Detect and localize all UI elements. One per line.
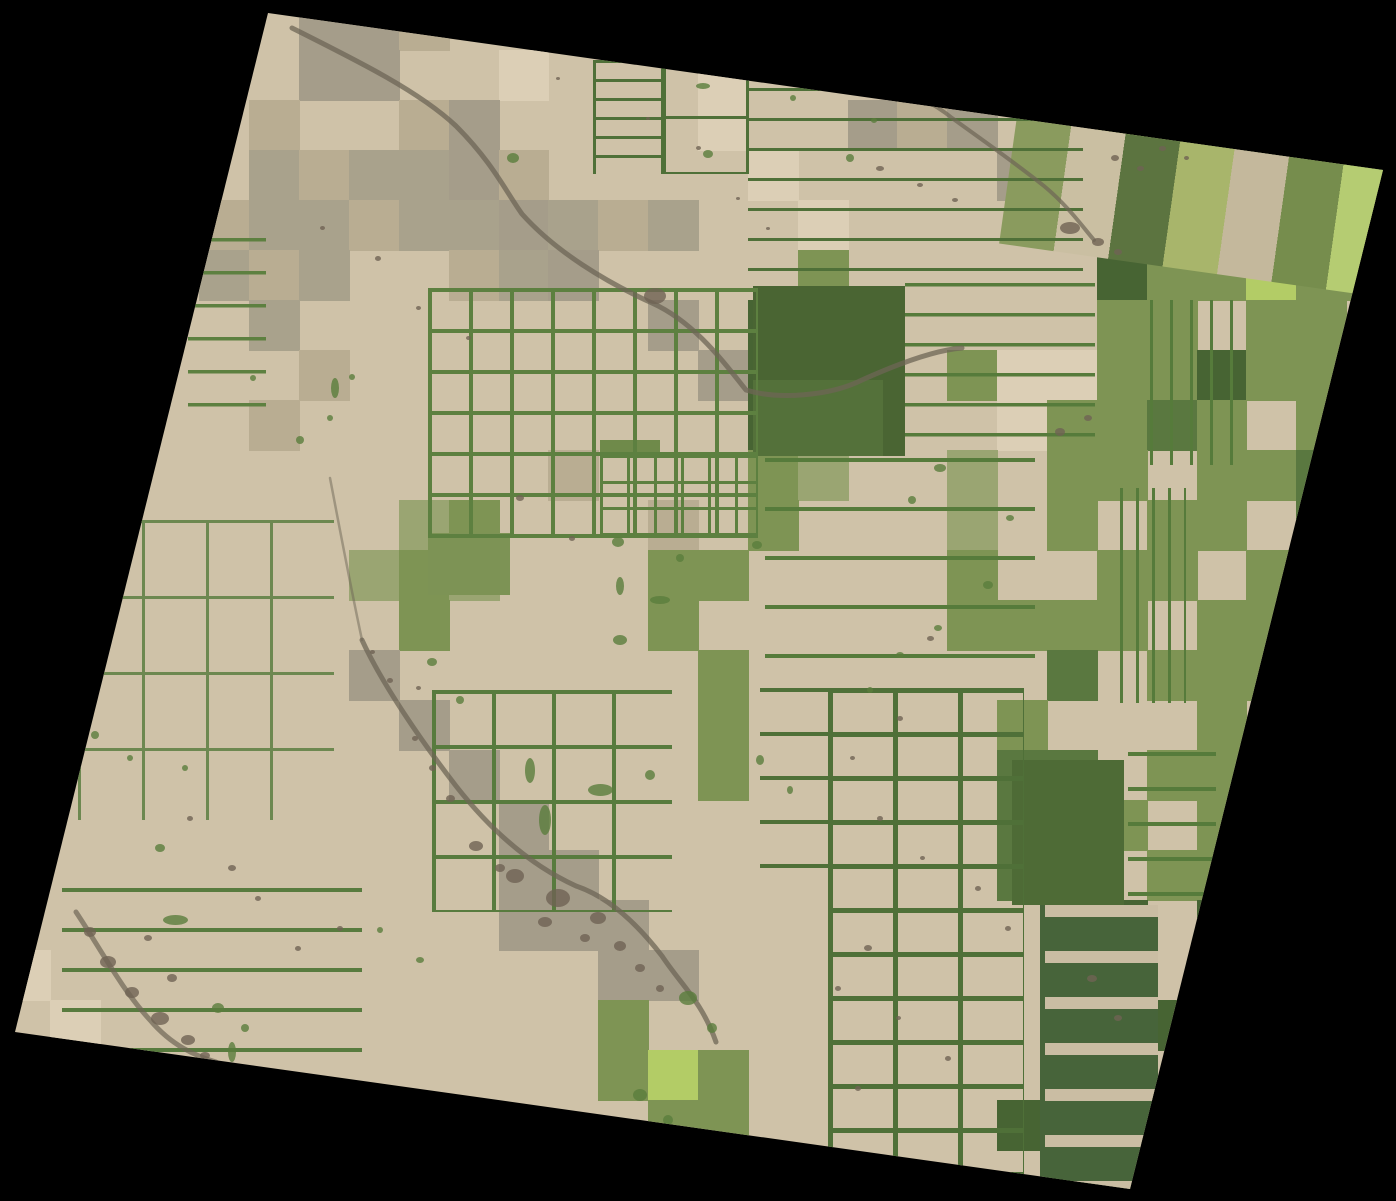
- woodlot-spot: [296, 436, 304, 444]
- field-cell: [1346, 500, 1396, 551]
- brush-smudge-spot: [1111, 155, 1119, 161]
- brush-smudge-spot: [181, 1035, 195, 1045]
- woodlot-spot: [934, 625, 942, 631]
- brush-smudge-spot: [412, 736, 418, 741]
- woodlot-spot: [163, 915, 188, 925]
- brush-smudge-spot: [927, 636, 934, 641]
- brush-smudge-spot: [917, 183, 923, 187]
- woodlot-spot: [456, 696, 464, 704]
- satellite-scene: [0, 0, 1396, 1200]
- brush-smudge-spot: [200, 1052, 210, 1059]
- brush-smudge-spot: [1114, 249, 1122, 255]
- brush-smudge-spot: [1092, 238, 1104, 246]
- brush-smudge-spot: [506, 869, 524, 883]
- brush-smudge-spot: [975, 886, 981, 891]
- woodlot-spot: [241, 1024, 249, 1032]
- brush-smudge-spot: [167, 974, 177, 982]
- brush-smudge-spot: [295, 946, 301, 951]
- brush-smudge-spot: [556, 77, 560, 80]
- woodlot-spot: [127, 755, 133, 761]
- brush-smudge-spot: [416, 686, 421, 690]
- woodlot-spot: [613, 635, 627, 645]
- brush-smudge-spot: [151, 1012, 169, 1025]
- woodlot-spot: [871, 118, 877, 123]
- brush-smudge-spot: [945, 1056, 951, 1061]
- brush-smudge-spot: [850, 756, 855, 760]
- brush-smudge-spot: [100, 956, 116, 968]
- field-cell: [1197, 100, 1248, 151]
- woodlot-spot: [679, 991, 697, 1005]
- brush-smudge-spot: [446, 795, 455, 802]
- brush-smudge-spot: [337, 926, 343, 931]
- woodlot-spot: [663, 1115, 673, 1125]
- brush-smudge-spot: [877, 816, 883, 821]
- woodlot-spot: [676, 554, 684, 562]
- brush-smudge-spot: [644, 288, 666, 304]
- woodlot-spot: [867, 687, 873, 693]
- brush-smudge-spot: [1206, 140, 1211, 144]
- brush-smudge-spot: [546, 889, 570, 907]
- woodlot-spot: [790, 95, 796, 101]
- field-cell: [1296, 800, 1347, 851]
- field-cell: [1296, 600, 1347, 651]
- brush-smudge-spot: [387, 678, 393, 683]
- woodlot-spot: [612, 537, 624, 547]
- woodlot-spot: [331, 378, 339, 398]
- brush-smudge-spot: [255, 896, 261, 901]
- woodlot-spot: [277, 1070, 287, 1080]
- woodlot-spot: [212, 1003, 224, 1013]
- brush-smudge-spot: [125, 987, 139, 998]
- brush-smudge-spot: [736, 197, 740, 200]
- woodlot-spot: [616, 577, 624, 595]
- woodlot-spot: [896, 652, 904, 658]
- woodlot-spot: [427, 658, 437, 666]
- brush-smudge-spot: [876, 166, 884, 171]
- brush-smudge-spot: [370, 650, 375, 654]
- woodlot-spot: [645, 770, 655, 780]
- brush-smudge-spot: [1005, 926, 1011, 931]
- woodlot-spot: [846, 154, 854, 162]
- field-cell: [1346, 750, 1396, 801]
- woodlot-spot: [707, 1023, 717, 1033]
- brush-smudge-spot: [1184, 156, 1189, 160]
- woodlot-spot: [327, 415, 333, 421]
- brush-smudge-spot: [1137, 166, 1144, 171]
- brush-smudge-spot: [1055, 428, 1065, 436]
- brush-smudge-spot: [466, 336, 471, 340]
- woodlot-spot: [752, 541, 762, 549]
- brush-smudge-spot: [429, 765, 436, 771]
- woodlot-spot: [525, 758, 535, 783]
- brush-smudge-spot: [1084, 415, 1092, 421]
- brush-smudge-spot: [1114, 1015, 1122, 1021]
- brush-smudge-spot: [897, 716, 903, 721]
- brush-smudge-spot: [320, 226, 325, 230]
- woodlot-spot: [182, 765, 188, 771]
- woodlot-spot: [934, 464, 946, 472]
- brush-smudge-spot: [495, 864, 505, 872]
- field-cell: [1197, 950, 1248, 1001]
- woodlot-spot: [937, 93, 944, 99]
- field-cell: [1346, 550, 1396, 601]
- woodlot-spot: [539, 805, 551, 835]
- woodlot-spot: [787, 786, 793, 794]
- brush-smudge-spot: [646, 117, 650, 120]
- brush-smudge-spot: [580, 934, 590, 942]
- brush-smudge-spot: [614, 941, 626, 951]
- brush-smudge-spot: [144, 935, 152, 941]
- brush-smudge-spot: [538, 917, 552, 927]
- brush-smudge-spot: [228, 865, 236, 871]
- field-cell: [1346, 650, 1396, 701]
- brush-smudge-spot: [1087, 975, 1097, 982]
- brush-smudge-spot: [766, 227, 770, 230]
- woodlot-spot: [507, 153, 519, 163]
- woodlot-spot: [696, 83, 710, 89]
- field-cell: [1197, 900, 1248, 951]
- woodlot-spot: [703, 150, 713, 158]
- woodlot-spot: [228, 1042, 236, 1062]
- woodlot-spot: [650, 596, 670, 604]
- brush-smudge-spot: [952, 198, 958, 202]
- brush-smudge-spot: [416, 306, 421, 310]
- brush-smudge-spot: [187, 816, 193, 821]
- woodlot-spot: [756, 755, 764, 765]
- brush-smudge-spot: [864, 945, 872, 951]
- woodlot-spot: [1006, 515, 1014, 521]
- woodlot-spot: [250, 375, 256, 381]
- screenshot-canvas: [0, 0, 1396, 1200]
- woodlot-spot: [349, 374, 355, 380]
- brush-smudge-spot: [1060, 222, 1080, 234]
- brush-smudge-spot: [855, 1086, 861, 1091]
- brush-smudge-spot: [469, 841, 483, 851]
- brush-smudge-spot: [920, 856, 925, 860]
- brush-smudge-spot: [375, 256, 381, 261]
- brush-smudge-spot: [896, 1016, 901, 1020]
- stream-channels: [0, 0, 1396, 1200]
- field-cell: [1296, 850, 1347, 901]
- field-cell: [1346, 350, 1396, 401]
- brush-smudge-spot: [590, 912, 606, 924]
- woodlot-spot: [155, 844, 165, 852]
- brush-smudge-spot: [84, 927, 96, 937]
- field-cell: [1346, 400, 1396, 451]
- field-cell: [1296, 500, 1347, 551]
- woodlot-spot: [377, 927, 383, 933]
- woodlot-spot: [416, 957, 424, 963]
- woodlot-spot: [908, 496, 916, 504]
- field-cell: [1296, 550, 1347, 601]
- brush-smudge-spot: [656, 985, 664, 992]
- woodlot-spot: [588, 784, 613, 796]
- woodlot-spot: [1002, 106, 1008, 111]
- brush-smudge-spot: [569, 536, 575, 541]
- brush-smudge-spot: [516, 495, 524, 501]
- brush-smudge-spot: [635, 964, 645, 972]
- woodlot-spot: [983, 581, 993, 589]
- woodlot-spot: [91, 731, 99, 739]
- woodlot-spot: [633, 1089, 647, 1101]
- brush-smudge-spot: [1159, 146, 1166, 151]
- brush-smudge-spot: [835, 986, 841, 991]
- field-cell: [1296, 700, 1347, 751]
- brush-smudge-spot: [696, 146, 701, 150]
- field-cell: [1246, 750, 1297, 801]
- field-cell: [100, 1050, 151, 1101]
